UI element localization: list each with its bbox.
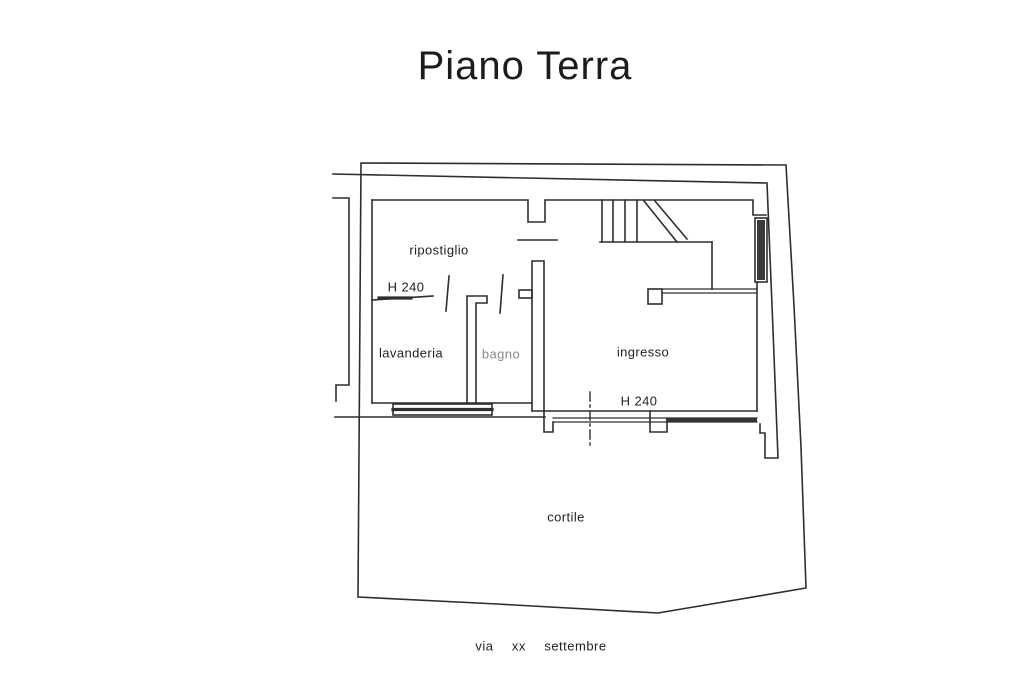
neighbor-wall-left [333, 198, 349, 401]
right-wall-window-glass [757, 220, 765, 280]
bagno-door-leaf [500, 275, 503, 313]
room-label-bagno: bagno [482, 347, 520, 362]
door-pier-left [544, 411, 553, 432]
site-outline [358, 163, 806, 613]
lavanderia-door-leaf [446, 276, 449, 311]
site-boundary [333, 163, 806, 613]
exterior-walls [372, 200, 766, 432]
bagno-ingresso-partition [532, 261, 544, 411]
bagno-door-jamb [519, 290, 532, 298]
height-annotation-ripostiglio: H 240 [388, 280, 425, 295]
stair-treads [602, 200, 637, 242]
height-annotation-ingresso: H 240 [621, 394, 658, 409]
room-label-cortile: cortile [547, 510, 584, 525]
room-label-ingresso: ingresso [617, 345, 669, 360]
doors [446, 275, 503, 313]
staircase [600, 200, 757, 304]
entry-railing [662, 289, 757, 293]
room-label-lavanderia: lavanderia [379, 346, 443, 361]
stair-break-line [644, 201, 687, 242]
floor-plan-page: Piano Terra [0, 0, 1024, 682]
railing-pillar [648, 289, 662, 304]
street-label: via xx settembre [475, 639, 606, 654]
floor-plan-drawing [0, 0, 1024, 682]
interior-partitions [372, 240, 557, 411]
room-label-ripostiglio: ripostiglio [409, 243, 468, 258]
top-wall-with-flue-notch [372, 200, 766, 222]
